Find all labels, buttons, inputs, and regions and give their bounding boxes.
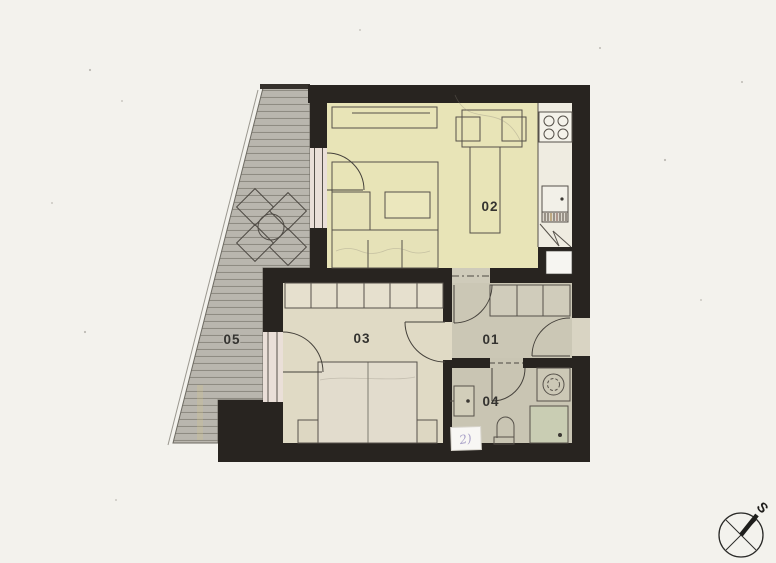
coffee-table xyxy=(385,192,430,218)
living-room-window xyxy=(310,148,327,228)
hall-wardrobe xyxy=(490,285,570,316)
washbasin xyxy=(450,386,474,416)
floor-plan-page: 02 03 01 04 05 2) S xyxy=(0,0,776,563)
label-living: 02 xyxy=(481,199,498,214)
nightstand-right xyxy=(417,420,437,443)
entry-door-gap xyxy=(572,318,590,356)
kitchen-sink xyxy=(542,186,568,212)
bedroom-wardrobe xyxy=(285,283,443,308)
compass-label: S xyxy=(754,499,772,516)
nightstand-left xyxy=(298,420,318,443)
stove xyxy=(539,112,572,142)
floor-plan-drawing: 02 03 01 04 05 2) S xyxy=(0,0,776,563)
door-gap-bedroom xyxy=(443,322,452,360)
note-text: 2) xyxy=(457,431,473,447)
label-bedroom: 03 xyxy=(353,331,370,346)
label-terrace: 05 xyxy=(223,332,240,347)
handwritten-note: 2) xyxy=(451,426,482,450)
north-needle xyxy=(741,515,757,535)
dishwasher-hatch xyxy=(542,212,568,222)
label-hall: 01 xyxy=(482,332,499,347)
double-bed xyxy=(318,362,417,443)
compass-icon: S xyxy=(719,499,772,557)
label-bath: 04 xyxy=(482,394,499,409)
hallway-furniture xyxy=(490,285,570,316)
shower xyxy=(530,406,568,443)
shaft xyxy=(546,251,572,274)
bedroom-window xyxy=(263,332,283,402)
washing-machine xyxy=(537,368,570,401)
